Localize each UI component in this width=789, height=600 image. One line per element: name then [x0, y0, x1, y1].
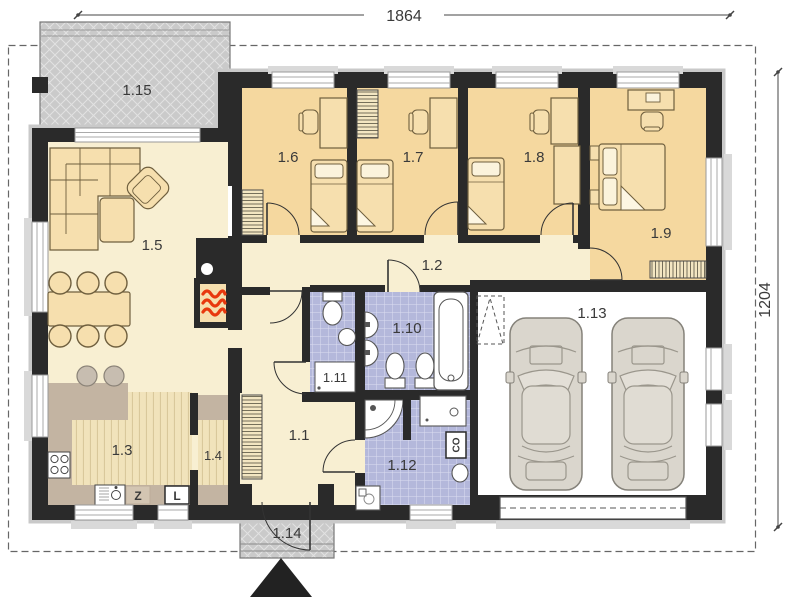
- nightstand-1: [590, 146, 599, 160]
- entrance-arrow-icon: [250, 558, 312, 597]
- window-west-living: [24, 218, 48, 316]
- dining-table: [48, 292, 130, 326]
- chair-1-9: [641, 112, 663, 131]
- pantry-shelf-top: [198, 395, 228, 420]
- chair-1-8: [530, 110, 549, 134]
- garage-door: [496, 497, 690, 529]
- kitchen-sink: [95, 485, 125, 505]
- bidet-1-10: [415, 353, 435, 388]
- chair-1-7: [409, 110, 428, 134]
- dishwasher-label: Z: [134, 489, 141, 503]
- label-room-1-2: 1.2: [422, 257, 443, 274]
- label-room-1-10: 1.10: [392, 320, 421, 337]
- washing-machine: [356, 486, 380, 510]
- label-room-1-14: 1.14: [272, 525, 301, 542]
- bathtub: [434, 292, 468, 390]
- window-north-1-9: [613, 66, 683, 88]
- car-1: [506, 318, 586, 490]
- label-room-1-7: 1.7: [403, 149, 424, 166]
- floor-plan-page: 1864 1204: [0, 0, 789, 600]
- wc-1-11-basin: [339, 329, 356, 346]
- desk-1-6: [320, 98, 347, 148]
- label-room-1-11: 1.11: [323, 370, 347, 385]
- floor-plan-drawing: 1864 1204: [0, 0, 789, 600]
- label-room-1-6: 1.6: [278, 149, 299, 166]
- label-room-1-8: 1.8: [524, 149, 545, 166]
- hall-wardrobe: [242, 395, 262, 479]
- desk-1-9-monitor: [646, 93, 660, 102]
- kitchen-wood-floor-2: [128, 392, 192, 485]
- label-room-1-5: 1.5: [142, 237, 163, 254]
- label-room-1-12: 1.12: [387, 457, 416, 474]
- window-north-1-6: [268, 66, 338, 88]
- window-east-1-9: [706, 154, 732, 250]
- window-north-1-7: [384, 66, 454, 88]
- wardrobe-1-7: [357, 90, 378, 138]
- label-room-1-9: 1.9: [651, 225, 672, 242]
- toilet-1-10: [385, 353, 405, 388]
- bed-1-6: [311, 160, 347, 232]
- label-room-1-3: 1.3: [112, 442, 133, 459]
- window-south-kitchen-2: [154, 505, 192, 529]
- ottoman: [100, 198, 134, 242]
- bar-stool-2: [104, 366, 124, 386]
- pantry-shelf-bottom: [198, 485, 228, 505]
- window-west-dining: [24, 371, 48, 441]
- boiler-label: CO: [452, 437, 463, 452]
- wardrobe-1-8: [554, 146, 580, 204]
- utility-counter: [420, 396, 466, 426]
- desk-1-8: [551, 98, 578, 144]
- window-east-garage-2: [706, 400, 732, 450]
- tv: [228, 186, 232, 236]
- terrace-area: [32, 22, 230, 130]
- boiler-co: CO: [446, 432, 466, 458]
- car-2: [608, 318, 688, 490]
- fireplace: [194, 238, 232, 328]
- desk-1-7: [430, 98, 457, 148]
- wardrobe-1-9: [650, 261, 706, 278]
- label-room-1-4: 1.4: [204, 448, 222, 463]
- bar-stool-1: [77, 366, 97, 386]
- window-east-garage-1: [706, 344, 732, 394]
- window-north-1-8: [492, 66, 562, 88]
- dishwasher-label-box: Z: [126, 486, 150, 504]
- kitchen-counter-bar: [48, 383, 128, 420]
- wardrobe-1-6: [242, 190, 263, 235]
- nightstand-2: [590, 190, 599, 204]
- chimney: [196, 238, 232, 278]
- window-south-kitchen-1: [71, 505, 137, 529]
- dimension-width-label: 1864: [386, 8, 422, 25]
- fridge-label-box: L: [165, 486, 189, 504]
- master-bed-1-9: [590, 144, 665, 210]
- terrace-wall-stub: [32, 77, 48, 93]
- dimension-height-label: 1204: [757, 282, 774, 318]
- wc-1-11-toilet: [323, 292, 342, 325]
- bed-1-7: [357, 160, 393, 232]
- label-room-1-1: 1.1: [289, 427, 310, 444]
- terrace-sliding-door: [75, 128, 200, 142]
- fridge-label: L: [173, 489, 180, 503]
- window-south-utility: [406, 505, 456, 529]
- dimension-right: 1204: [757, 68, 782, 531]
- chair-1-6: [299, 110, 318, 134]
- bed-1-8: [468, 158, 504, 230]
- utility-basin: [452, 464, 468, 482]
- label-room-1-13: 1.13: [577, 305, 606, 322]
- label-room-1-15: 1.15: [122, 82, 151, 99]
